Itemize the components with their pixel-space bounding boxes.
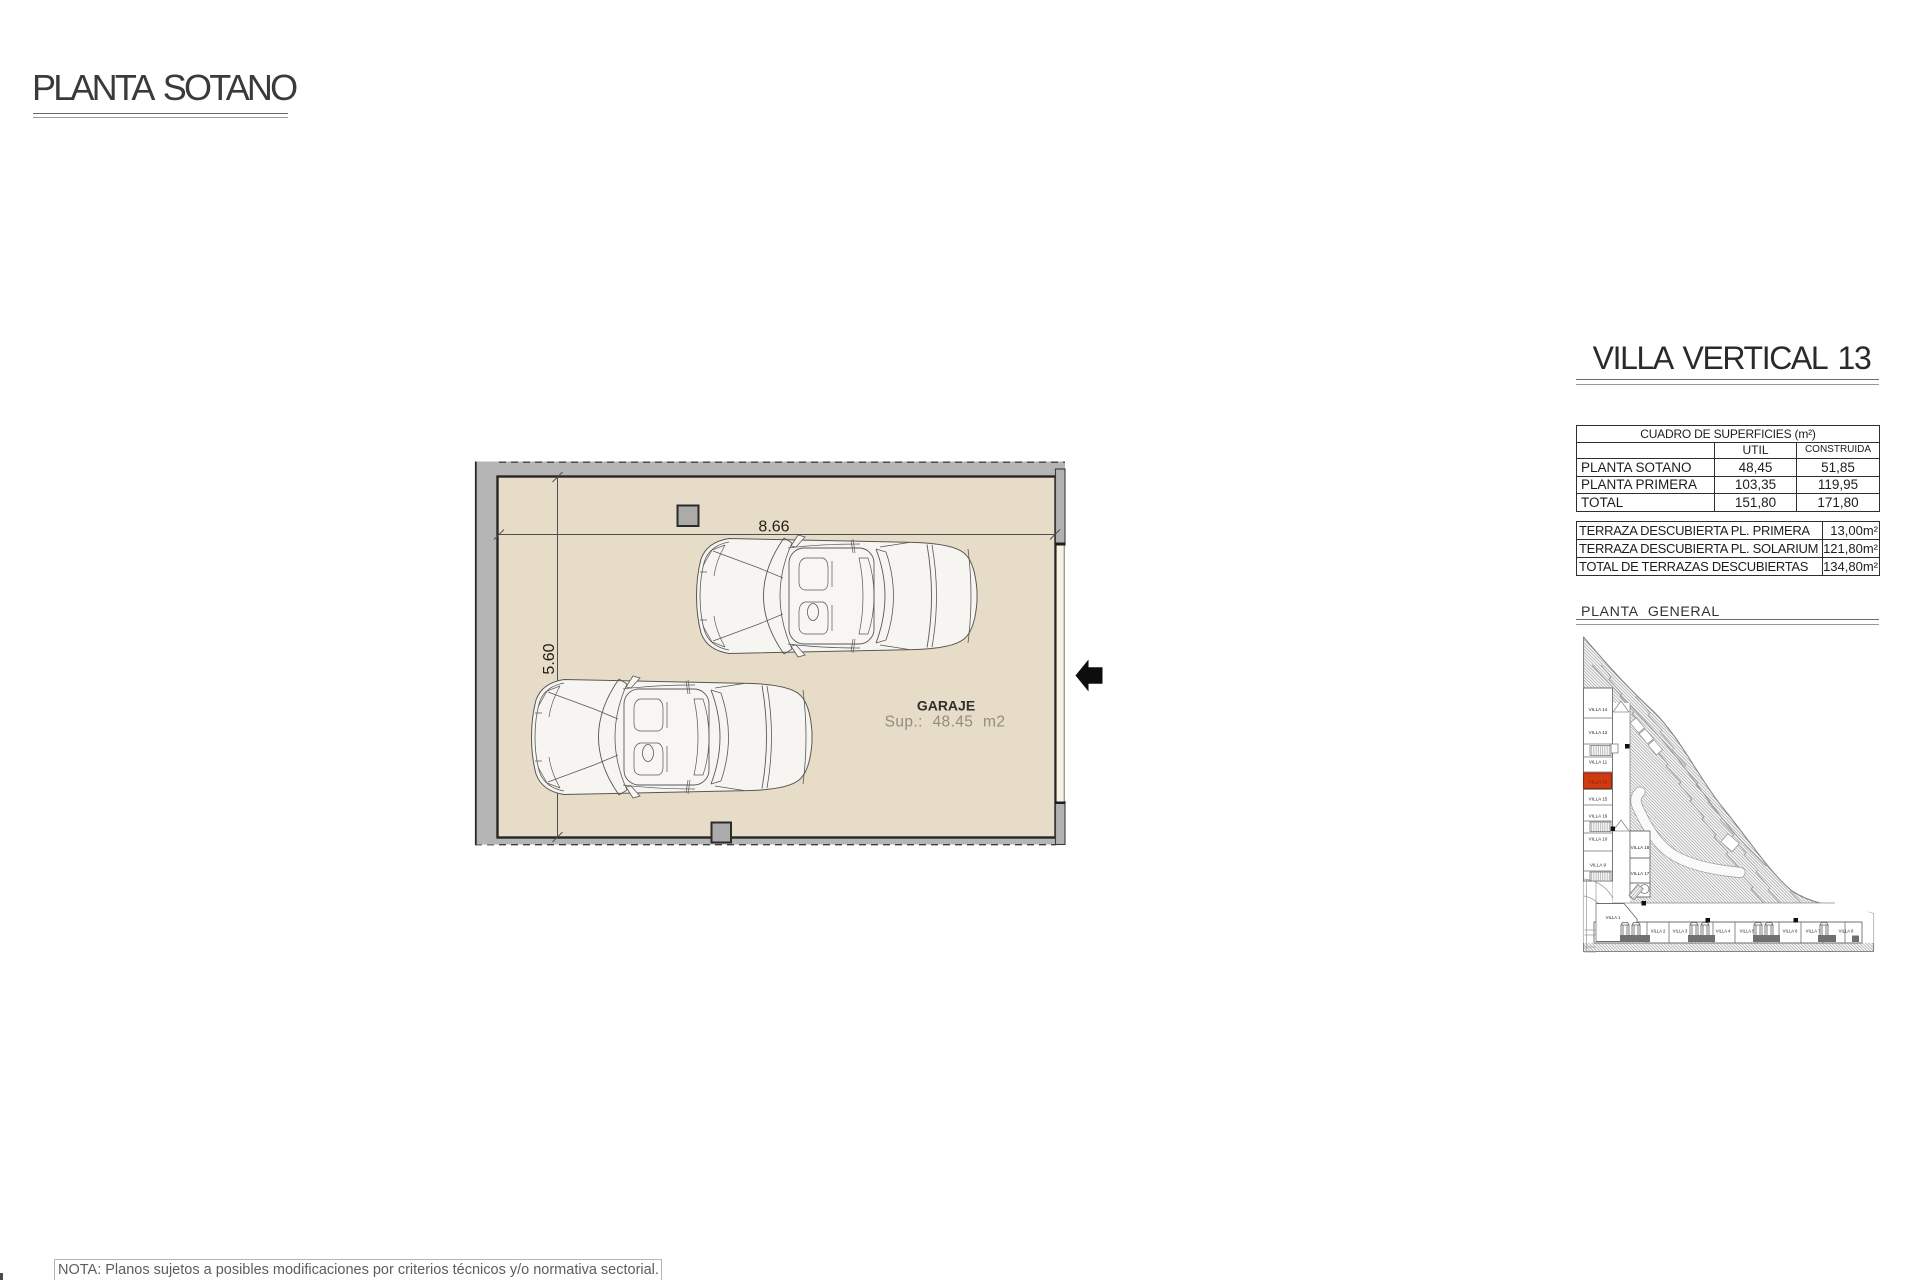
svg-text:VILLA 2: VILLA 2	[1651, 929, 1666, 934]
svg-text:VILLA 6: VILLA 6	[1783, 929, 1798, 934]
svg-text:Sup.: 48.45 m2: Sup.: 48.45 m2	[885, 714, 1006, 731]
svg-text:VILLA 8: VILLA 8	[1839, 929, 1854, 934]
svg-text:VILLA 17: VILLA 17	[1631, 871, 1650, 876]
svg-text:VILLA 5: VILLA 5	[1740, 929, 1755, 934]
svg-text:VILLA 9: VILLA 9	[1590, 863, 1607, 868]
svg-text:VILLA 13: VILLA 13	[1589, 780, 1608, 785]
svg-text:5.60: 5.60	[541, 643, 558, 674]
svg-text:VILLA 1: VILLA 1	[1606, 915, 1621, 920]
svg-text:VILLA 15: VILLA 15	[1589, 797, 1608, 802]
svg-text:VILLA 18: VILLA 18	[1631, 845, 1650, 850]
svg-text:VILLA 7: VILLA 7	[1806, 929, 1821, 934]
svg-text:VILLA 11: VILLA 11	[1589, 760, 1608, 765]
svg-text:8.66: 8.66	[758, 519, 789, 536]
svg-text:VILLA 14: VILLA 14	[1589, 707, 1608, 712]
svg-text:VILLA 16: VILLA 16	[1589, 814, 1608, 819]
svg-text:VILLA 12: VILLA 12	[1589, 730, 1608, 735]
svg-text:VILLA 10: VILLA 10	[1589, 837, 1608, 842]
svg-text:VILLA 3: VILLA 3	[1673, 929, 1688, 934]
svg-text:GARAJE: GARAJE	[917, 698, 975, 714]
svg-text:VILLA 4: VILLA 4	[1716, 929, 1731, 934]
